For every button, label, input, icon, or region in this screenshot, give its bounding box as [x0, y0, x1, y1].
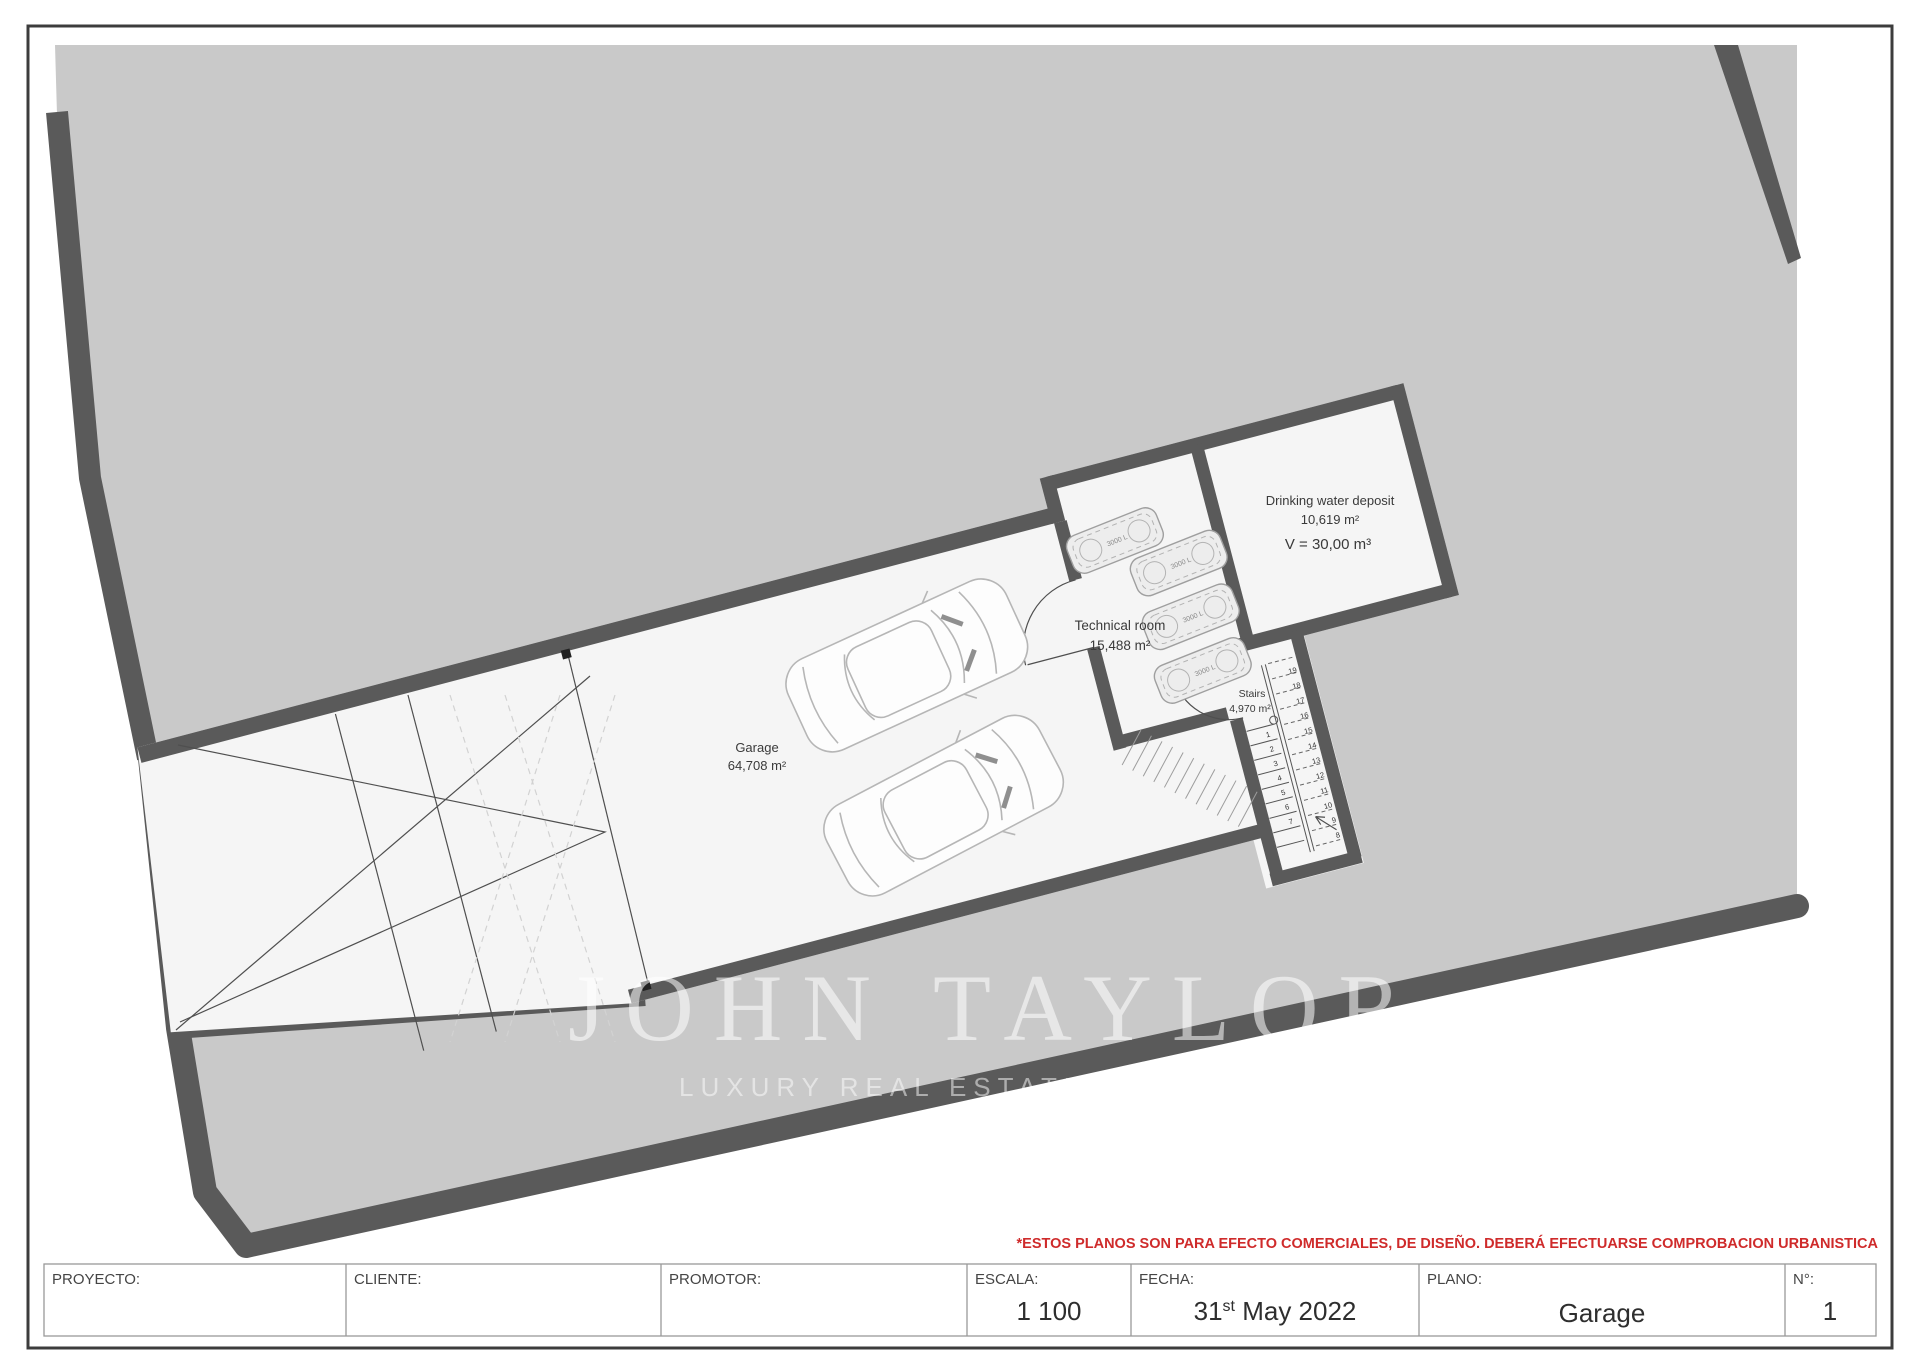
technical-room-area: 15,488 m² — [1090, 638, 1151, 653]
proyecto-label: PROYECTO: — [52, 1271, 140, 1288]
fecha-value: 31st May 2022 — [1194, 1296, 1357, 1326]
fecha-rest: May 2022 — [1235, 1296, 1356, 1326]
disclaimer-text: *ESTOS PLANOS SON PARA EFECTO COMERCIALE… — [1017, 1234, 1879, 1252]
promotor-label: PROMOTOR: — [669, 1271, 761, 1288]
stairs-label: Stairs — [1239, 688, 1266, 700]
watermark-line2: LUXURY REAL ESTATE SINCE 1864 — [679, 1072, 1317, 1102]
stairs-area: 4,970 m² — [1229, 703, 1271, 715]
numero-label: N°: — [1793, 1271, 1814, 1288]
deposit-label: Drinking water deposit — [1266, 493, 1395, 508]
garage-area: 64,708 m² — [728, 758, 787, 773]
drawing-sheet: 1234567 8910111213141516171819 3000 L300… — [0, 0, 1920, 1358]
plano-value: Garage — [1559, 1298, 1646, 1328]
watermark: JOHN TAYLOR LUXURY REAL ESTATE SINCE 186… — [568, 955, 1422, 1102]
floor-plan-canvas: 1234567 8910111213141516171819 3000 L300… — [0, 0, 1920, 1358]
deposit-area: 10,619 m² — [1301, 512, 1360, 527]
escala-label: ESCALA: — [975, 1271, 1038, 1288]
fecha-label: FECHA: — [1139, 1271, 1194, 1288]
fecha-day-suffix: st — [1223, 1298, 1236, 1315]
technical-room-label: Technical room — [1075, 618, 1166, 633]
cliente-label: CLIENTE: — [354, 1271, 422, 1288]
deposit-volume: V = 30,00 m³ — [1285, 536, 1371, 553]
numero-value: 1 — [1823, 1296, 1837, 1326]
garage-label: Garage — [735, 740, 778, 755]
watermark-line1: JOHN TAYLOR — [568, 955, 1422, 1061]
fecha-day: 31 — [1194, 1296, 1223, 1326]
escala-value: 1 100 — [1016, 1296, 1081, 1326]
plano-label: PLANO: — [1427, 1271, 1482, 1288]
